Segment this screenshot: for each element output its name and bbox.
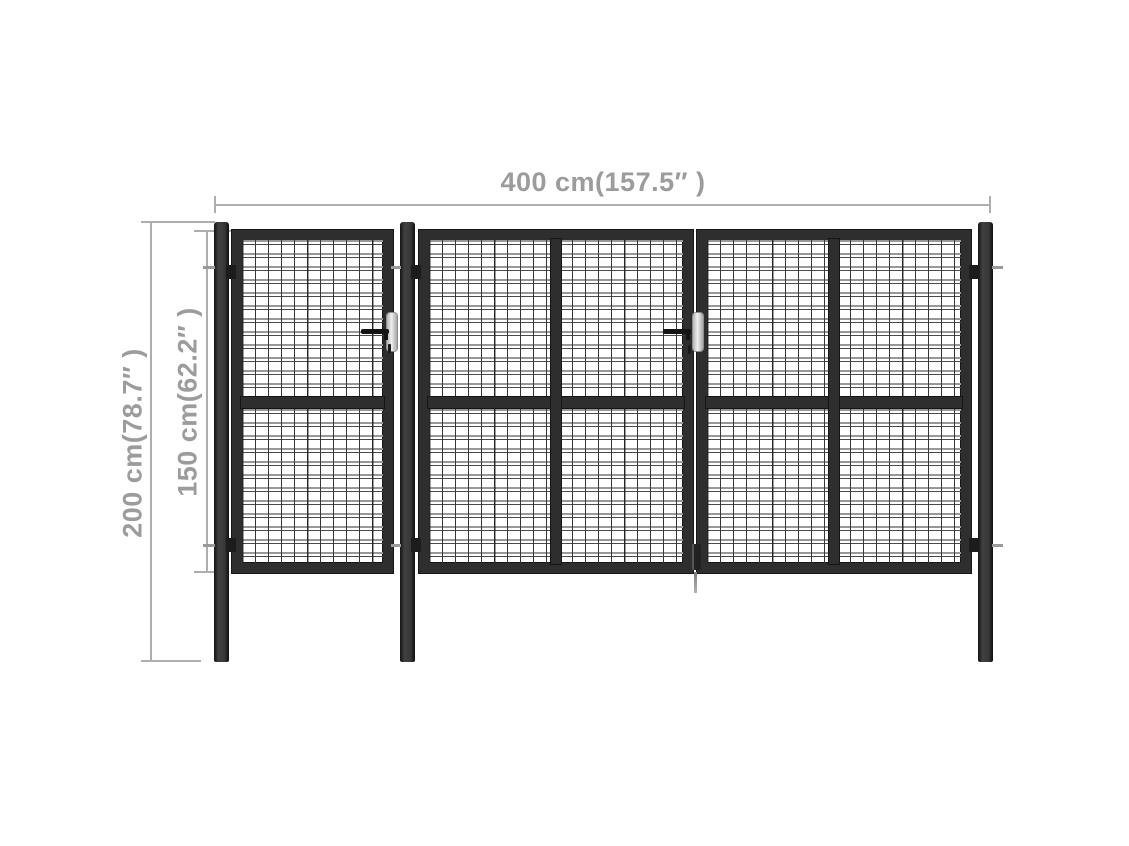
center-vertical-rail [829, 239, 839, 564]
keyhole-double-gate [688, 345, 691, 354]
pedestrian-gate-panel [232, 230, 393, 573]
double-gate-left-panel [419, 230, 693, 573]
handle-grip-end [686, 333, 690, 340]
drop-rod [694, 572, 697, 593]
hinge-bolt-stub [203, 266, 215, 269]
width-dimension-tick-right [989, 196, 991, 213]
double-gate-right-panel [697, 230, 971, 573]
post-height-dimension-label: 200 cm(78.7″ ) [118, 348, 149, 538]
hinge-bottom-left-post [226, 538, 236, 552]
hinge-bolt-stub [391, 266, 401, 269]
middle-rail [241, 397, 384, 408]
hinge-bolt-stub [391, 544, 401, 547]
width-dimension-line [214, 204, 991, 206]
post-height-dimension-line [150, 223, 152, 662]
hinge-top-left-post [226, 265, 236, 279]
width-dimension-tick-left [214, 196, 216, 213]
gate-post-right [978, 222, 993, 662]
bottom-latch [692, 544, 701, 570]
hinge-bolt-stub [992, 266, 1003, 269]
gate-height-dimension-line [206, 232, 208, 573]
keyhole-pedestrian [388, 344, 391, 353]
hinge-top-middle-post [411, 265, 421, 279]
width-dimension-label: 400 cm(157.5″ ) [215, 167, 991, 198]
post-height-dimension-tick-top [141, 221, 215, 223]
hinge-top-right-post [969, 265, 979, 279]
lock-plate-double-gate [693, 313, 703, 351]
handle-grip-end [384, 333, 388, 340]
hinge-bottom-middle-post [411, 538, 421, 552]
hinge-bottom-right-post [969, 538, 979, 552]
gate-height-dimension-label: 150 cm(62.2″ ) [173, 307, 204, 497]
product-diagram-canvas: 400 cm(157.5″ ) 200 cm(78.7″ ) 150 cm(62… [0, 0, 1129, 846]
post-height-dimension-tick-bottom [141, 660, 201, 662]
hinge-bolt-stub [203, 544, 215, 547]
hinge-bolt-stub [992, 544, 1003, 547]
gate-post-left [214, 222, 229, 662]
center-vertical-rail [551, 239, 561, 564]
gate-post-middle [400, 222, 415, 662]
